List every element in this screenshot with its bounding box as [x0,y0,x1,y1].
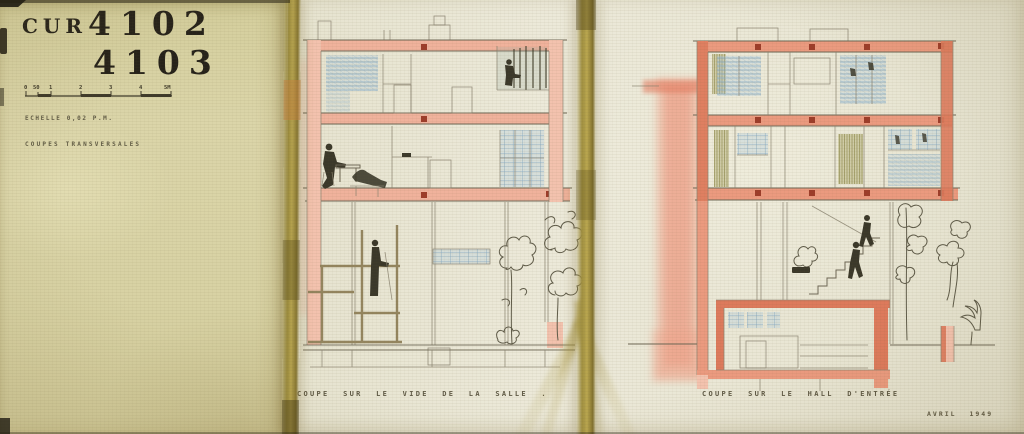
scale-label-50: 50 [33,85,40,91]
drawing-number-4102: 4102 [88,4,216,43]
window-glazing [500,130,544,187]
tape-stain [282,400,299,434]
left-top-floor [326,46,549,113]
figure-doctor-at-desk [322,144,346,189]
left-roof-boxes [318,16,450,40]
left-section-drawing [299,16,582,367]
blue-sign-band [433,249,490,264]
lower-service-box [697,300,890,379]
drawing-number-4103: 4103 [93,43,221,82]
tape-stain [576,170,596,220]
left-trees-sketch [497,211,582,344]
stair-steps [809,238,880,294]
scale-label-2: 2 [79,85,82,91]
caption-left-section: COUPE SUR LE VIDE DE LA SALLE . [297,390,548,398]
right-section-drawing [628,28,995,391]
scanned-drawing-sheet: CUR 4102 4103 0 50 1 2 3 4 5M ECHELLE 0,… [0,0,1024,434]
date-label: AVRIL 1949 [927,410,993,418]
tape-stain [283,240,300,300]
fold-tape-right [576,0,596,434]
tape-stain [576,0,596,30]
caption-right-section: COUPE SUR LE HALL D'ENTRÉE [702,390,899,398]
tape-stain [284,80,301,120]
scale-label-3: 3 [109,85,112,91]
ground-lines [303,345,575,350]
red-crayon-smudge [643,78,704,382]
right-middle-floor [714,126,940,188]
right-top-floor [712,52,886,115]
scale-label-5m: 5M [164,85,171,91]
window-blue-wash [326,55,378,91]
right-trees-sketch [896,204,981,345]
scale-label-1: 1 [49,85,53,91]
foundation-stub-right [874,379,888,388]
scale-label-0: 0 [24,85,27,91]
scale-bar: 0 50 1 2 3 4 5M [24,82,180,102]
garden-post [941,326,954,362]
left-hall [303,202,575,367]
archive-code-label: CUR [22,14,87,38]
figures-on-stairs [848,215,874,279]
left-middle-floor [322,126,544,197]
shelf-object [402,153,411,157]
figure-on-mezzanine [370,240,392,300]
scale-note: ECHELLE 0,02 P.M. [25,115,114,122]
foundation-stub-left [697,375,708,389]
fold-tape-left [282,0,301,434]
sculpture-sketch [792,247,818,273]
series-title: COUPES TRANSVERSALES [25,141,141,148]
scale-label-4: 4 [139,85,143,91]
